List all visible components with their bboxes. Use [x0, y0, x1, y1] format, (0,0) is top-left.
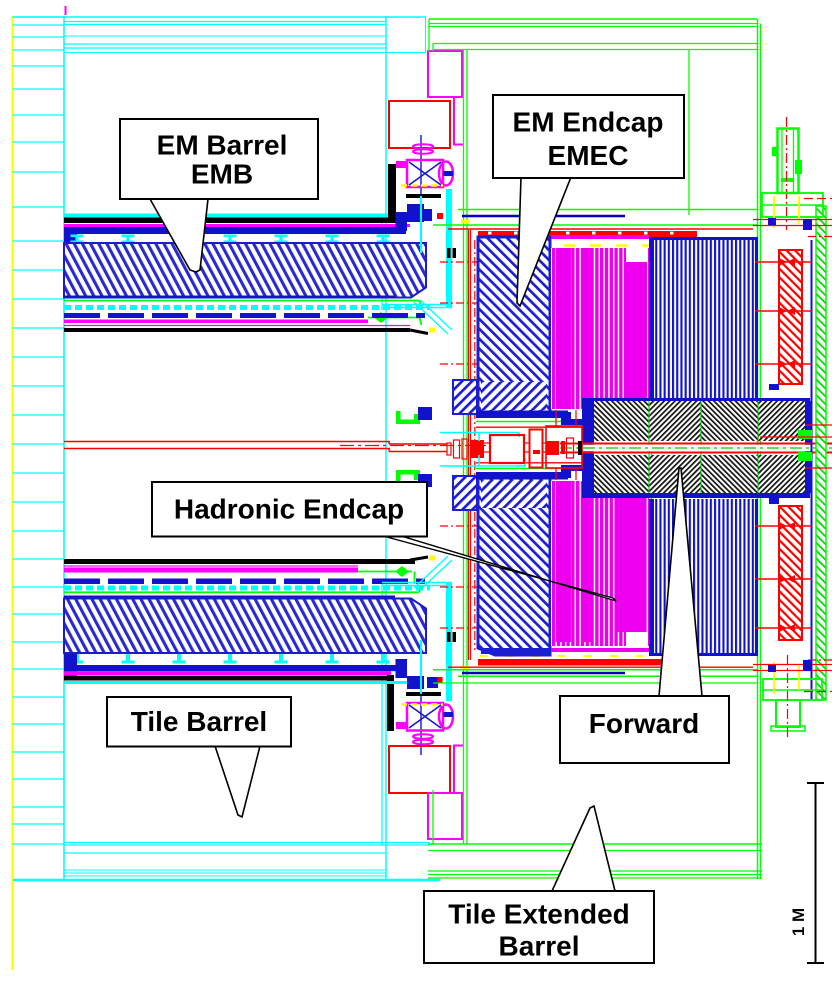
svg-text:Barrel: Barrel	[499, 931, 580, 962]
svg-text:EM Barrel: EM Barrel	[157, 130, 288, 161]
svg-text:EMEC: EMEC	[548, 140, 629, 171]
svg-text:Tile Barrel: Tile Barrel	[131, 706, 267, 737]
svg-text:Forward: Forward	[589, 708, 699, 739]
svg-text:Hadronic Endcap: Hadronic Endcap	[174, 494, 404, 525]
svg-text:EM Endcap: EM Endcap	[513, 107, 664, 138]
svg-text:Tile Extended: Tile Extended	[448, 899, 630, 930]
svg-text:1 M: 1 M	[789, 908, 808, 936]
svg-text:EMB: EMB	[191, 159, 253, 190]
